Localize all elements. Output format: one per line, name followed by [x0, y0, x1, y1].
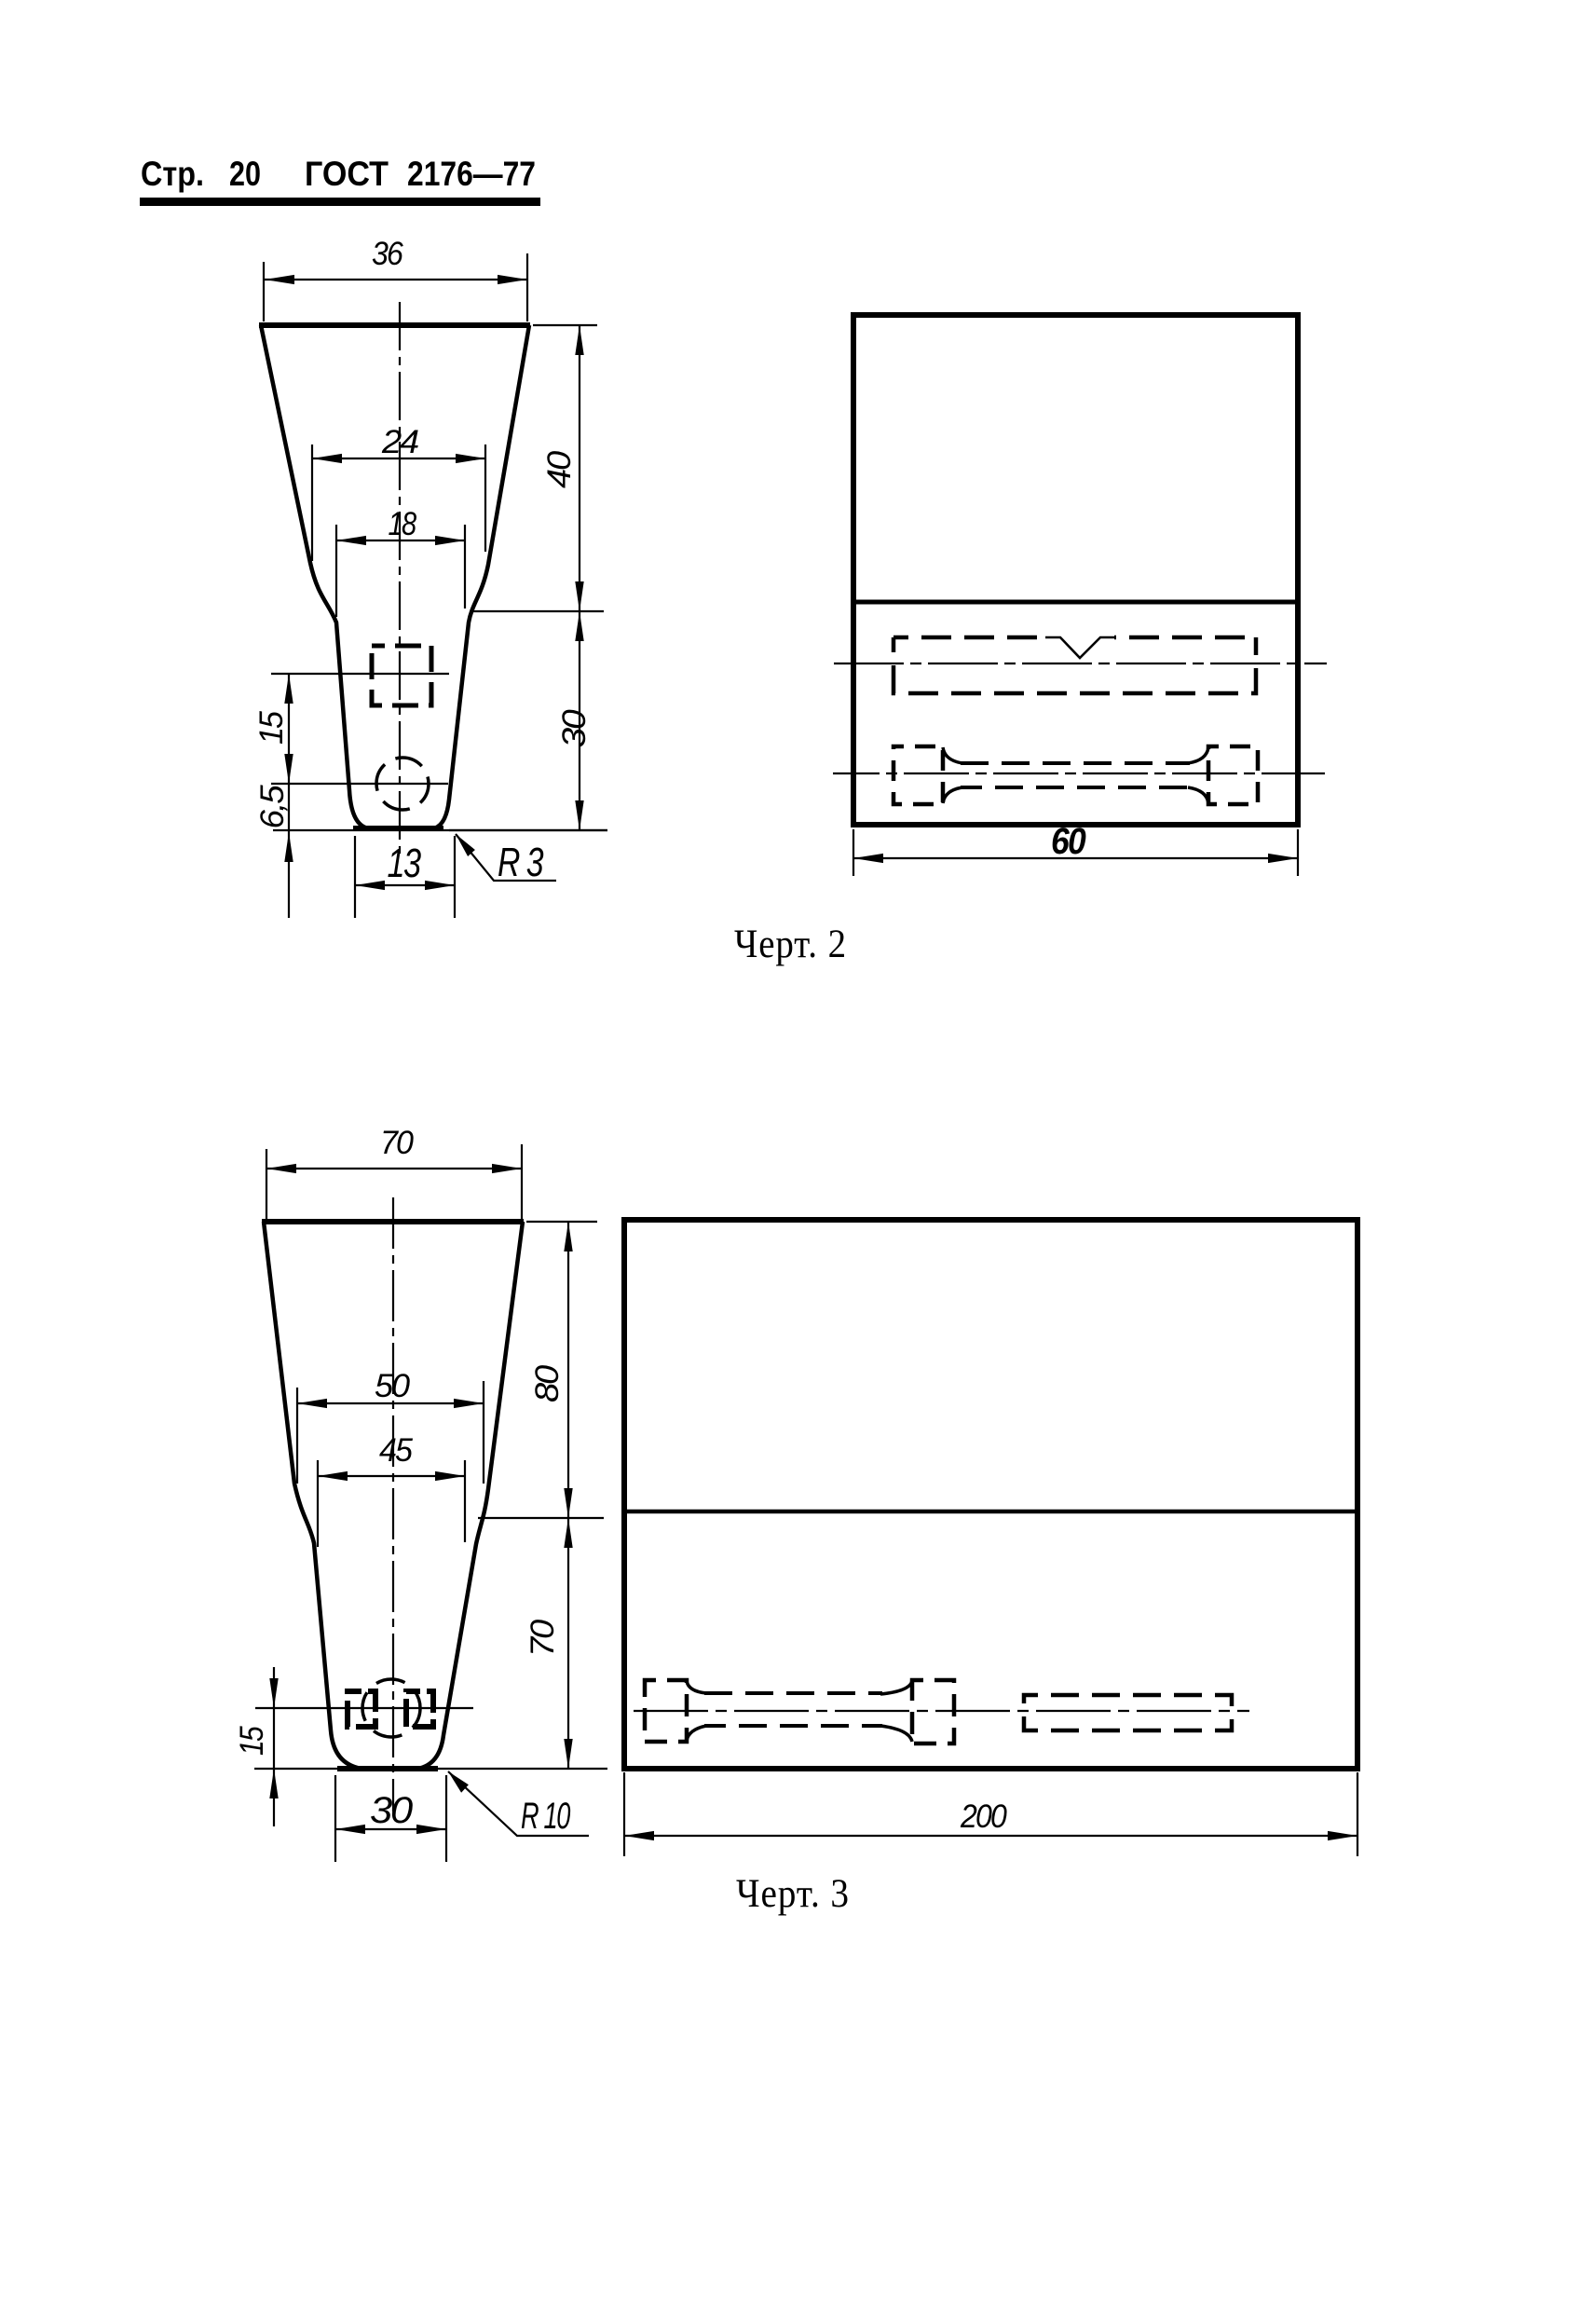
svg-text:40: 40 [541, 450, 578, 488]
svg-text:24: 24 [381, 424, 419, 460]
svg-text:70: 70 [525, 1619, 561, 1657]
svg-text:36: 36 [372, 236, 403, 272]
svg-text:30: 30 [370, 1790, 413, 1831]
svg-text:Черт. 2: Черт. 2 [734, 923, 847, 966]
svg-text:2176—77: 2176—77 [407, 155, 536, 193]
svg-text:15: 15 [253, 711, 290, 745]
svg-text:18: 18 [389, 506, 417, 542]
svg-text:70: 70 [380, 1125, 414, 1161]
svg-text:60: 60 [1051, 821, 1086, 862]
svg-text:R 10: R 10 [521, 1796, 570, 1837]
svg-text:20: 20 [229, 155, 261, 193]
svg-text:30: 30 [556, 709, 593, 748]
svg-text:R 3: R 3 [498, 840, 544, 885]
svg-text:50: 50 [375, 1368, 411, 1404]
svg-text:80: 80 [529, 1364, 566, 1402]
svg-text:ГОСТ: ГОСТ [305, 155, 389, 193]
svg-text:45: 45 [379, 1432, 413, 1469]
svg-text:Черт. 3: Черт. 3 [736, 1872, 850, 1916]
svg-text:13: 13 [388, 841, 422, 886]
svg-text:Стр.: Стр. [141, 155, 204, 193]
svg-text:200: 200 [960, 1798, 1007, 1835]
svg-text:6,5: 6,5 [254, 785, 291, 829]
svg-text:15: 15 [234, 1726, 270, 1756]
